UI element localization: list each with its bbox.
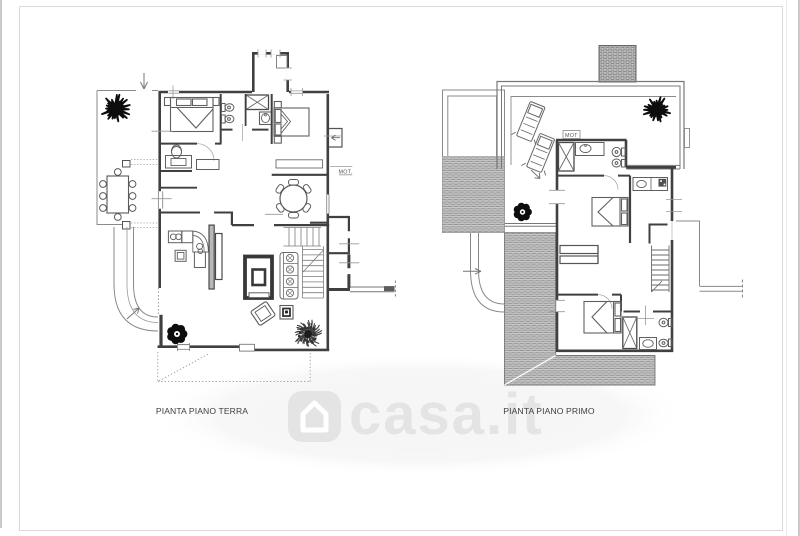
svg-text:PIANTA PIANO PRIMO: PIANTA PIANO PRIMO [503,406,595,416]
svg-text:PIANTA PIANO TERRA: PIANTA PIANO TERRA [156,406,248,416]
svg-text:MOT.: MOT. [339,169,353,175]
svg-text:MOT: MOT [565,133,578,139]
